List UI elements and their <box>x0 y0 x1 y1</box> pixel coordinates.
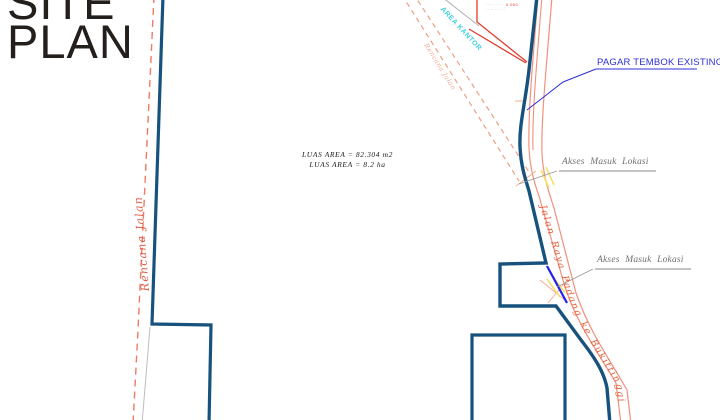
pagar-tembok-label: PAGAR TEMBOK EXISTING <box>597 57 720 68</box>
boundary-left <box>152 0 211 420</box>
side-road-dashed-line-2 <box>413 0 529 172</box>
area-note: LUAS AREA = 82.304 m2 LUAS AREA = 8.2 ha <box>250 150 445 170</box>
area-note-line2: LUAS AREA = 8.2 ha <box>250 160 445 170</box>
road-name-text: Jalan Raya Padang ke Bukittinggi <box>537 202 627 404</box>
tiny-annotation: ····· ···· 0.000 ···· ··· ·· <box>486 3 532 12</box>
rencana-jalan-text: Rencana Jalan <box>131 195 152 292</box>
page-title-line2: PLAN <box>7 18 134 65</box>
tiny-annotation-line2: ···· ··· ·· <box>486 8 532 13</box>
left-gray-line <box>142 327 150 420</box>
pagar-leader-line <box>527 69 596 110</box>
akses-masuk-label-2: Akses Masuk Lokasi <box>597 255 684 265</box>
akses-masuk-label-1: Akses Masuk Lokasi <box>562 157 649 167</box>
access1-yellow-marks <box>541 167 554 188</box>
area-note-line1: LUAS AREA = 82.304 m2 <box>250 150 445 160</box>
side-road-name-text: Rencana Jalan <box>422 41 458 92</box>
site-plan-canvas: Jalan Raya Padang ke Bukittinggi Rencana… <box>0 0 720 420</box>
inner-plot-outline <box>472 335 565 420</box>
tiny-annotation-value: 0.000 <box>506 2 519 7</box>
